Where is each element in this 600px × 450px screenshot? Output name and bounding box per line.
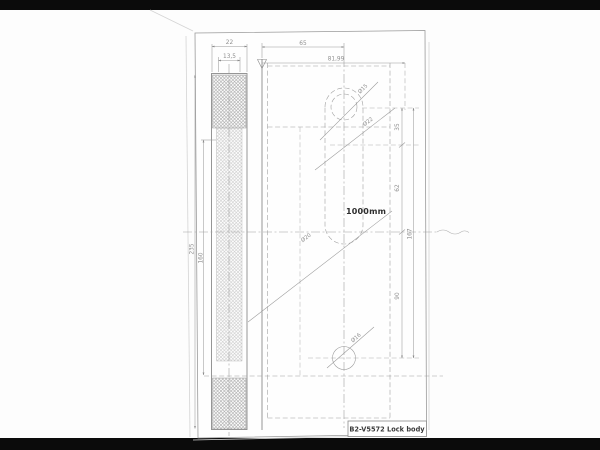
scan-black-bar-top [0,0,600,10]
scanned-drawing-page: 22 13,5 235 160 Ø15 [0,0,600,450]
dim-top-8199: 81,99 [328,57,345,63]
dim-faceplate-inner-width: 13,5 [223,54,236,60]
scan-black-bar-bottom [0,438,600,450]
dim-right-35: 35 [395,123,401,131]
title-block-text: B2-V5572 Lock body [349,426,425,434]
centerline-break-mark [437,230,469,234]
dim-faceplate-width: 22 [226,40,234,46]
title-block: B2-V5572 Lock body [348,421,427,437]
dim-faceplate-height: 235 [190,243,196,254]
dim-right-62: 62 [395,184,401,192]
dim-right-167: 167 [408,228,414,239]
dim-top-65: 65 [299,41,307,47]
dim-faceplate-inner-height: 160 [199,252,205,263]
lock-body-drawing: 22 13,5 235 160 Ø15 [0,0,600,450]
faceplate-view [212,64,248,436]
dim-right-90: 90 [395,292,401,300]
note-1000mm: 1000mm [346,207,386,216]
